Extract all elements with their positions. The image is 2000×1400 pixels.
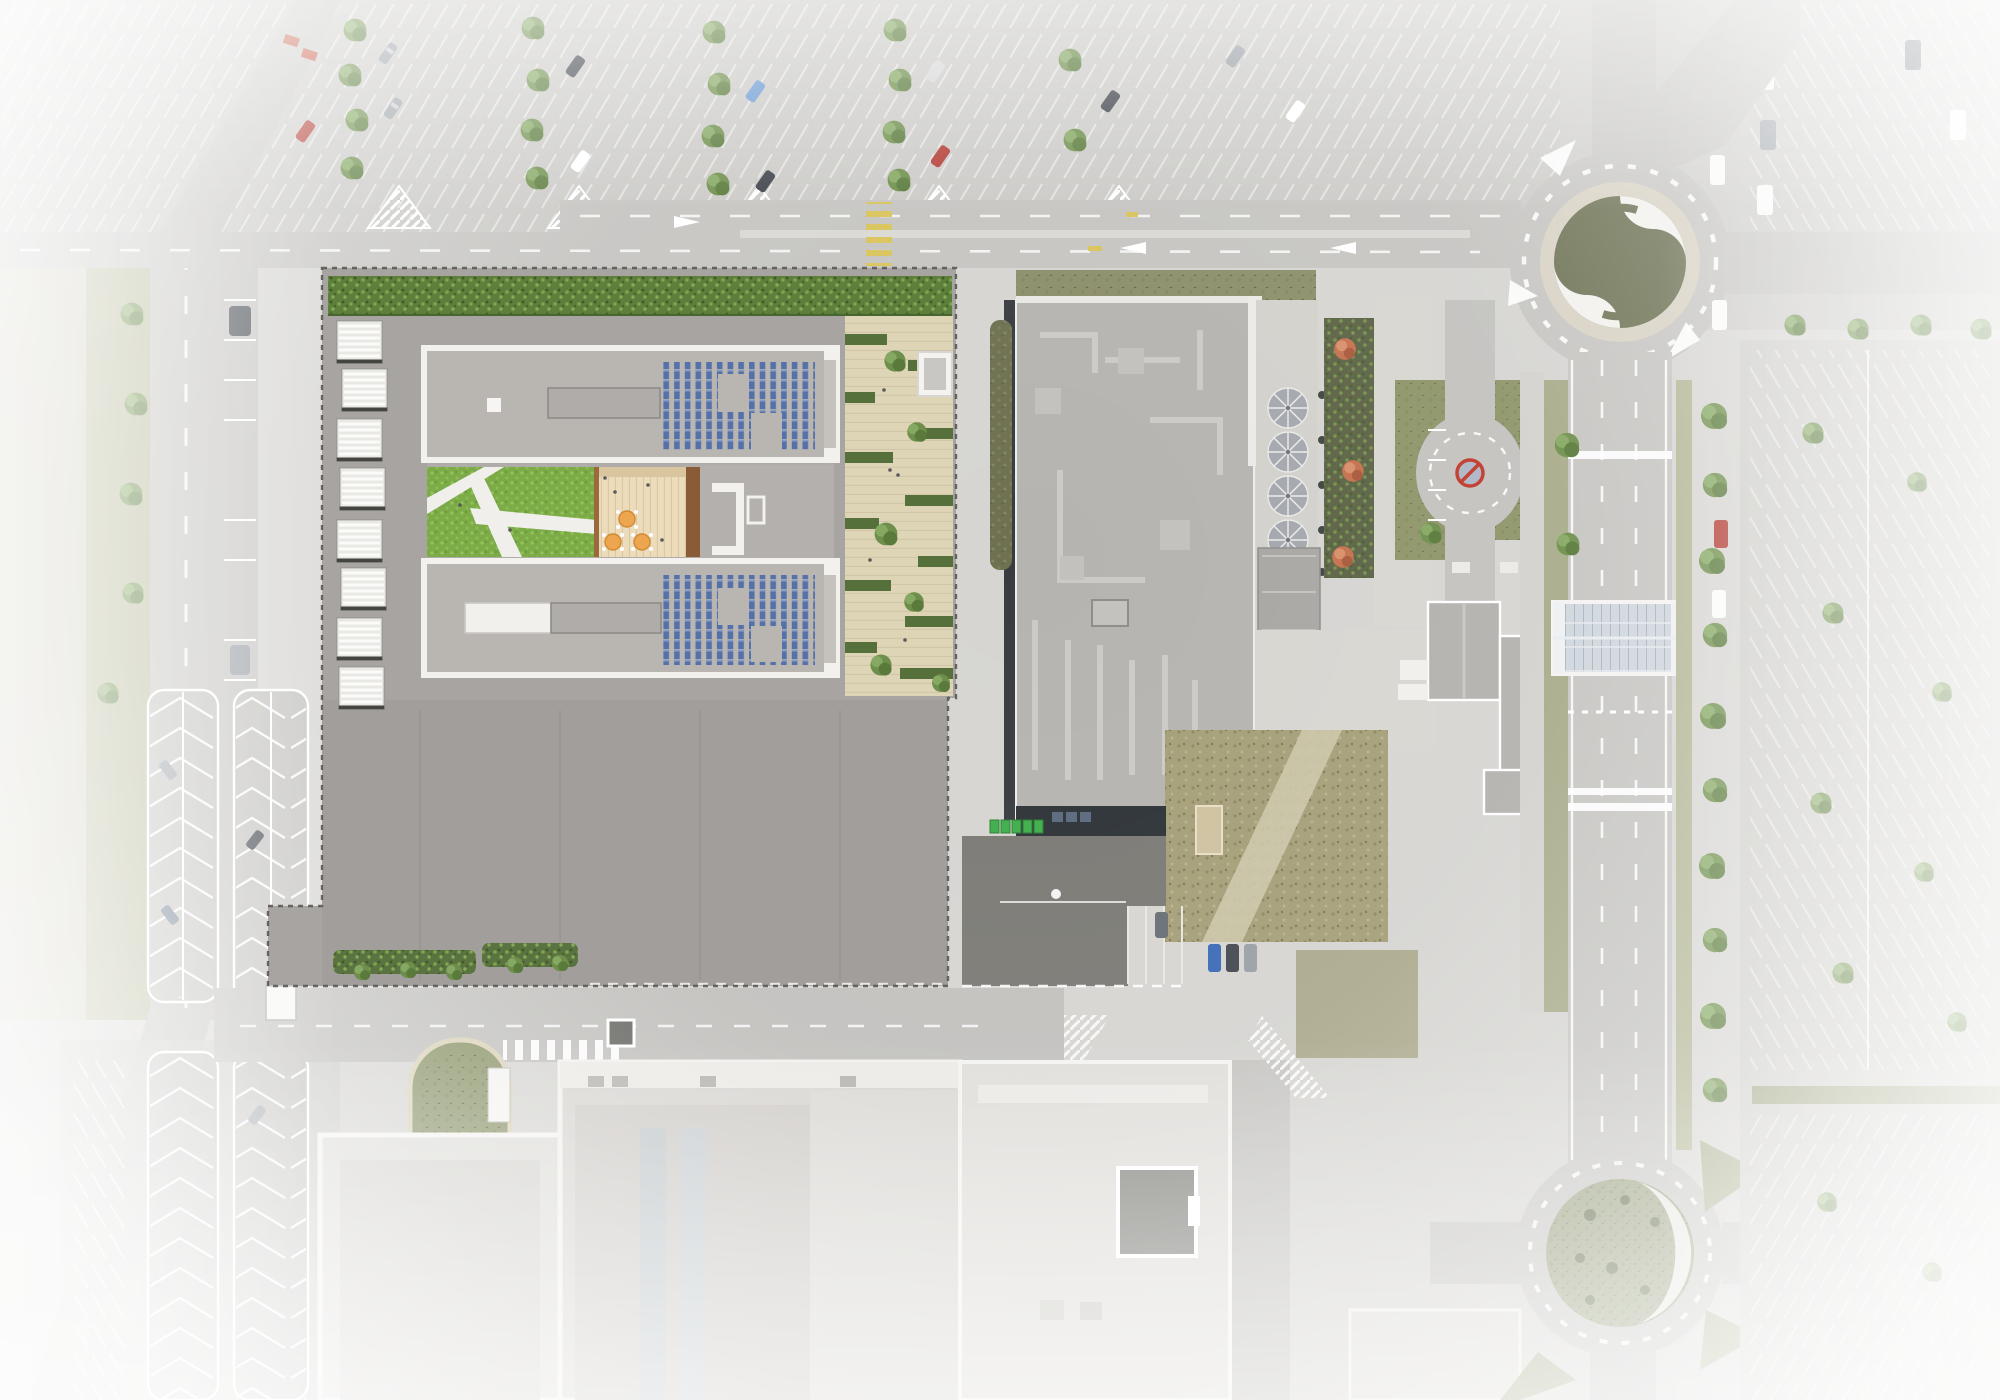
deck-east-frame xyxy=(686,467,701,557)
link-roof xyxy=(700,465,834,558)
courtyard xyxy=(427,463,834,558)
east-terrace xyxy=(845,316,953,696)
skylight-south-white xyxy=(465,603,551,633)
site-parking-apron xyxy=(322,700,948,986)
north-wing xyxy=(421,345,840,463)
site-container xyxy=(266,986,296,1020)
render-site xyxy=(266,268,956,1020)
skylight-north xyxy=(548,388,660,418)
fade-overlays xyxy=(0,0,2000,1400)
south-wing xyxy=(421,558,840,678)
aerial-site-plan xyxy=(0,0,2000,1400)
skylight-south-gray xyxy=(551,603,661,633)
